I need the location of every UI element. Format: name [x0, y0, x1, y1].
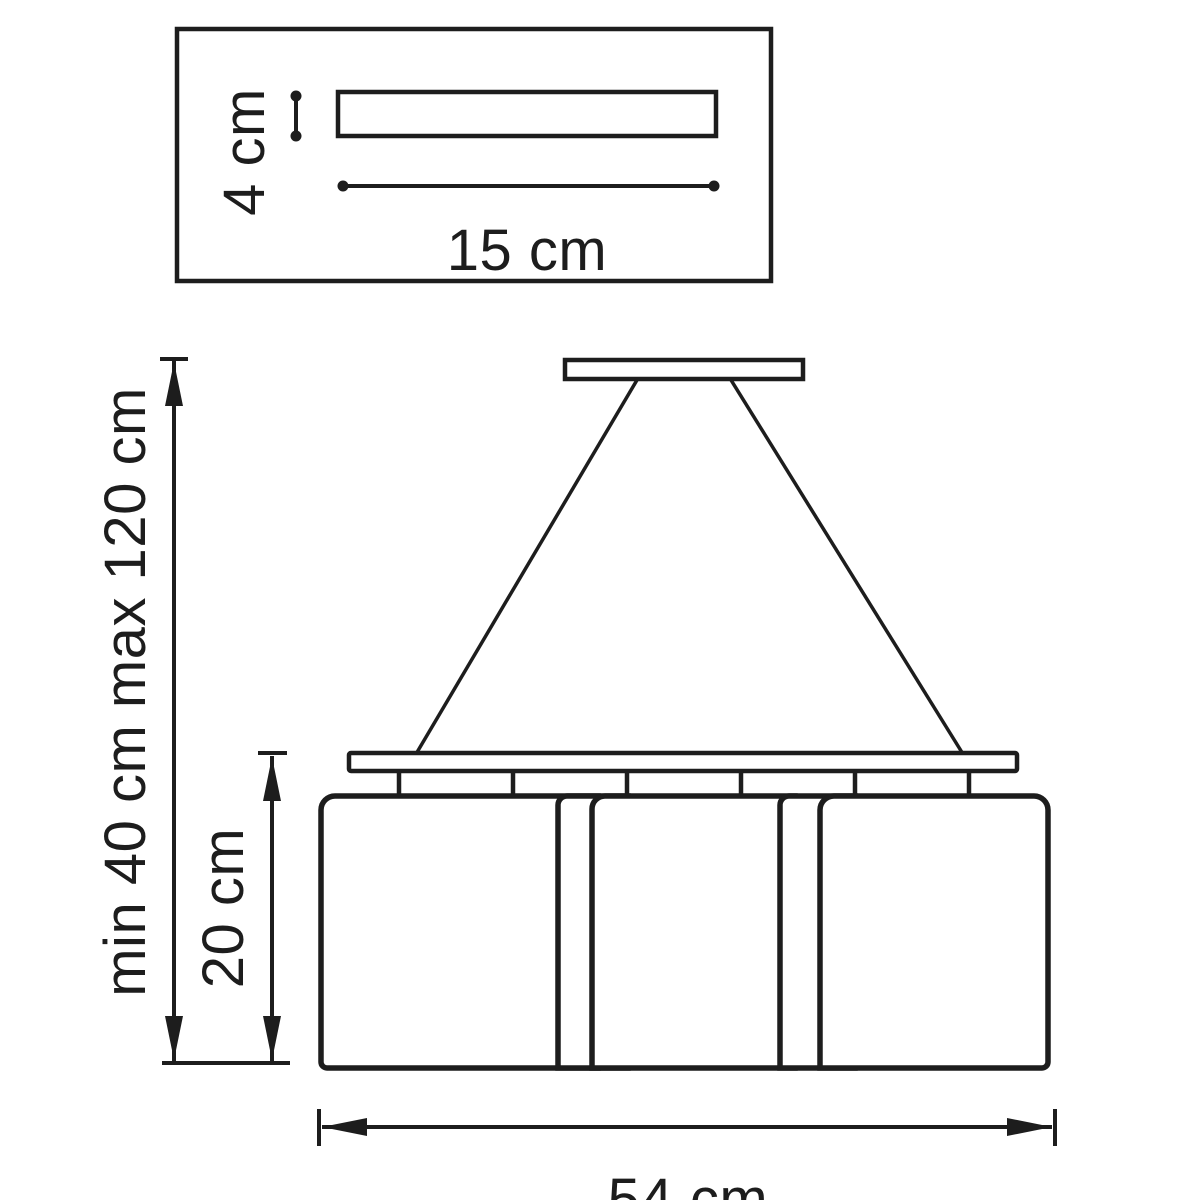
overall-width-label: 54 cm — [608, 1171, 768, 1200]
dimension-dot — [291, 91, 302, 102]
arrowhead-up — [165, 362, 183, 406]
shade-right — [820, 796, 1048, 1068]
canopy-top-view — [338, 92, 716, 136]
shade-middle — [592, 796, 795, 1068]
arrowhead-left — [322, 1118, 367, 1136]
dimension-dot — [709, 181, 720, 192]
dimension-dot — [338, 181, 349, 192]
dimension-diagram: 4 cm 15 cm min 40 cm max 120 cm 20 cm 54… — [0, 0, 1200, 1200]
suspension-height-label: min 40 cm max 120 cm — [97, 387, 155, 997]
arrowhead-down — [263, 1016, 281, 1060]
ceiling-plate — [565, 360, 803, 379]
arrowhead-right — [1007, 1118, 1052, 1136]
arrowhead-up — [263, 757, 281, 801]
shade-stems — [399, 771, 969, 797]
canopy-width-label: 15 cm — [447, 222, 607, 280]
overall-width-dimension — [319, 1109, 1055, 1146]
shade-height-label: 20 cm — [195, 828, 253, 988]
suspension-cable-right — [731, 380, 963, 754]
suspension-cable-left — [416, 380, 637, 754]
drawing-svg — [0, 0, 1200, 1200]
dimension-dot — [291, 131, 302, 142]
shade-height-dimension — [258, 753, 287, 1061]
shade-row — [321, 796, 1048, 1068]
canopy-height-label: 4 cm — [216, 88, 274, 216]
arrowhead-down — [165, 1016, 183, 1060]
mounting-bar — [349, 753, 1017, 771]
